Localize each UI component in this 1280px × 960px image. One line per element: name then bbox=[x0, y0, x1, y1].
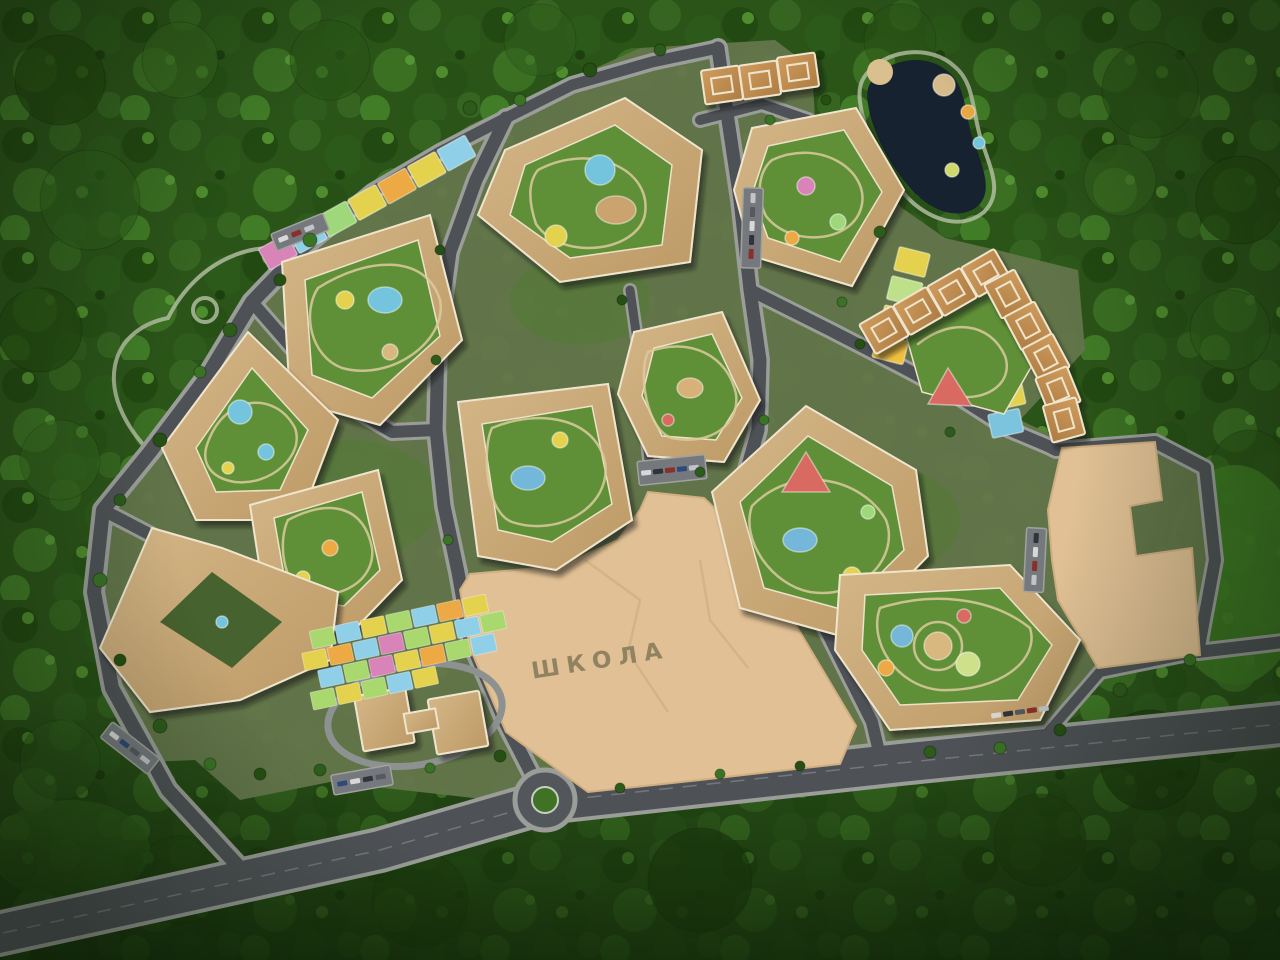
masterplan-aerial-rendering: ШКОЛА bbox=[0, 0, 1280, 960]
site-plan-stage: ШКОЛА bbox=[0, 0, 1280, 960]
vignette-overlay bbox=[0, 0, 1280, 960]
